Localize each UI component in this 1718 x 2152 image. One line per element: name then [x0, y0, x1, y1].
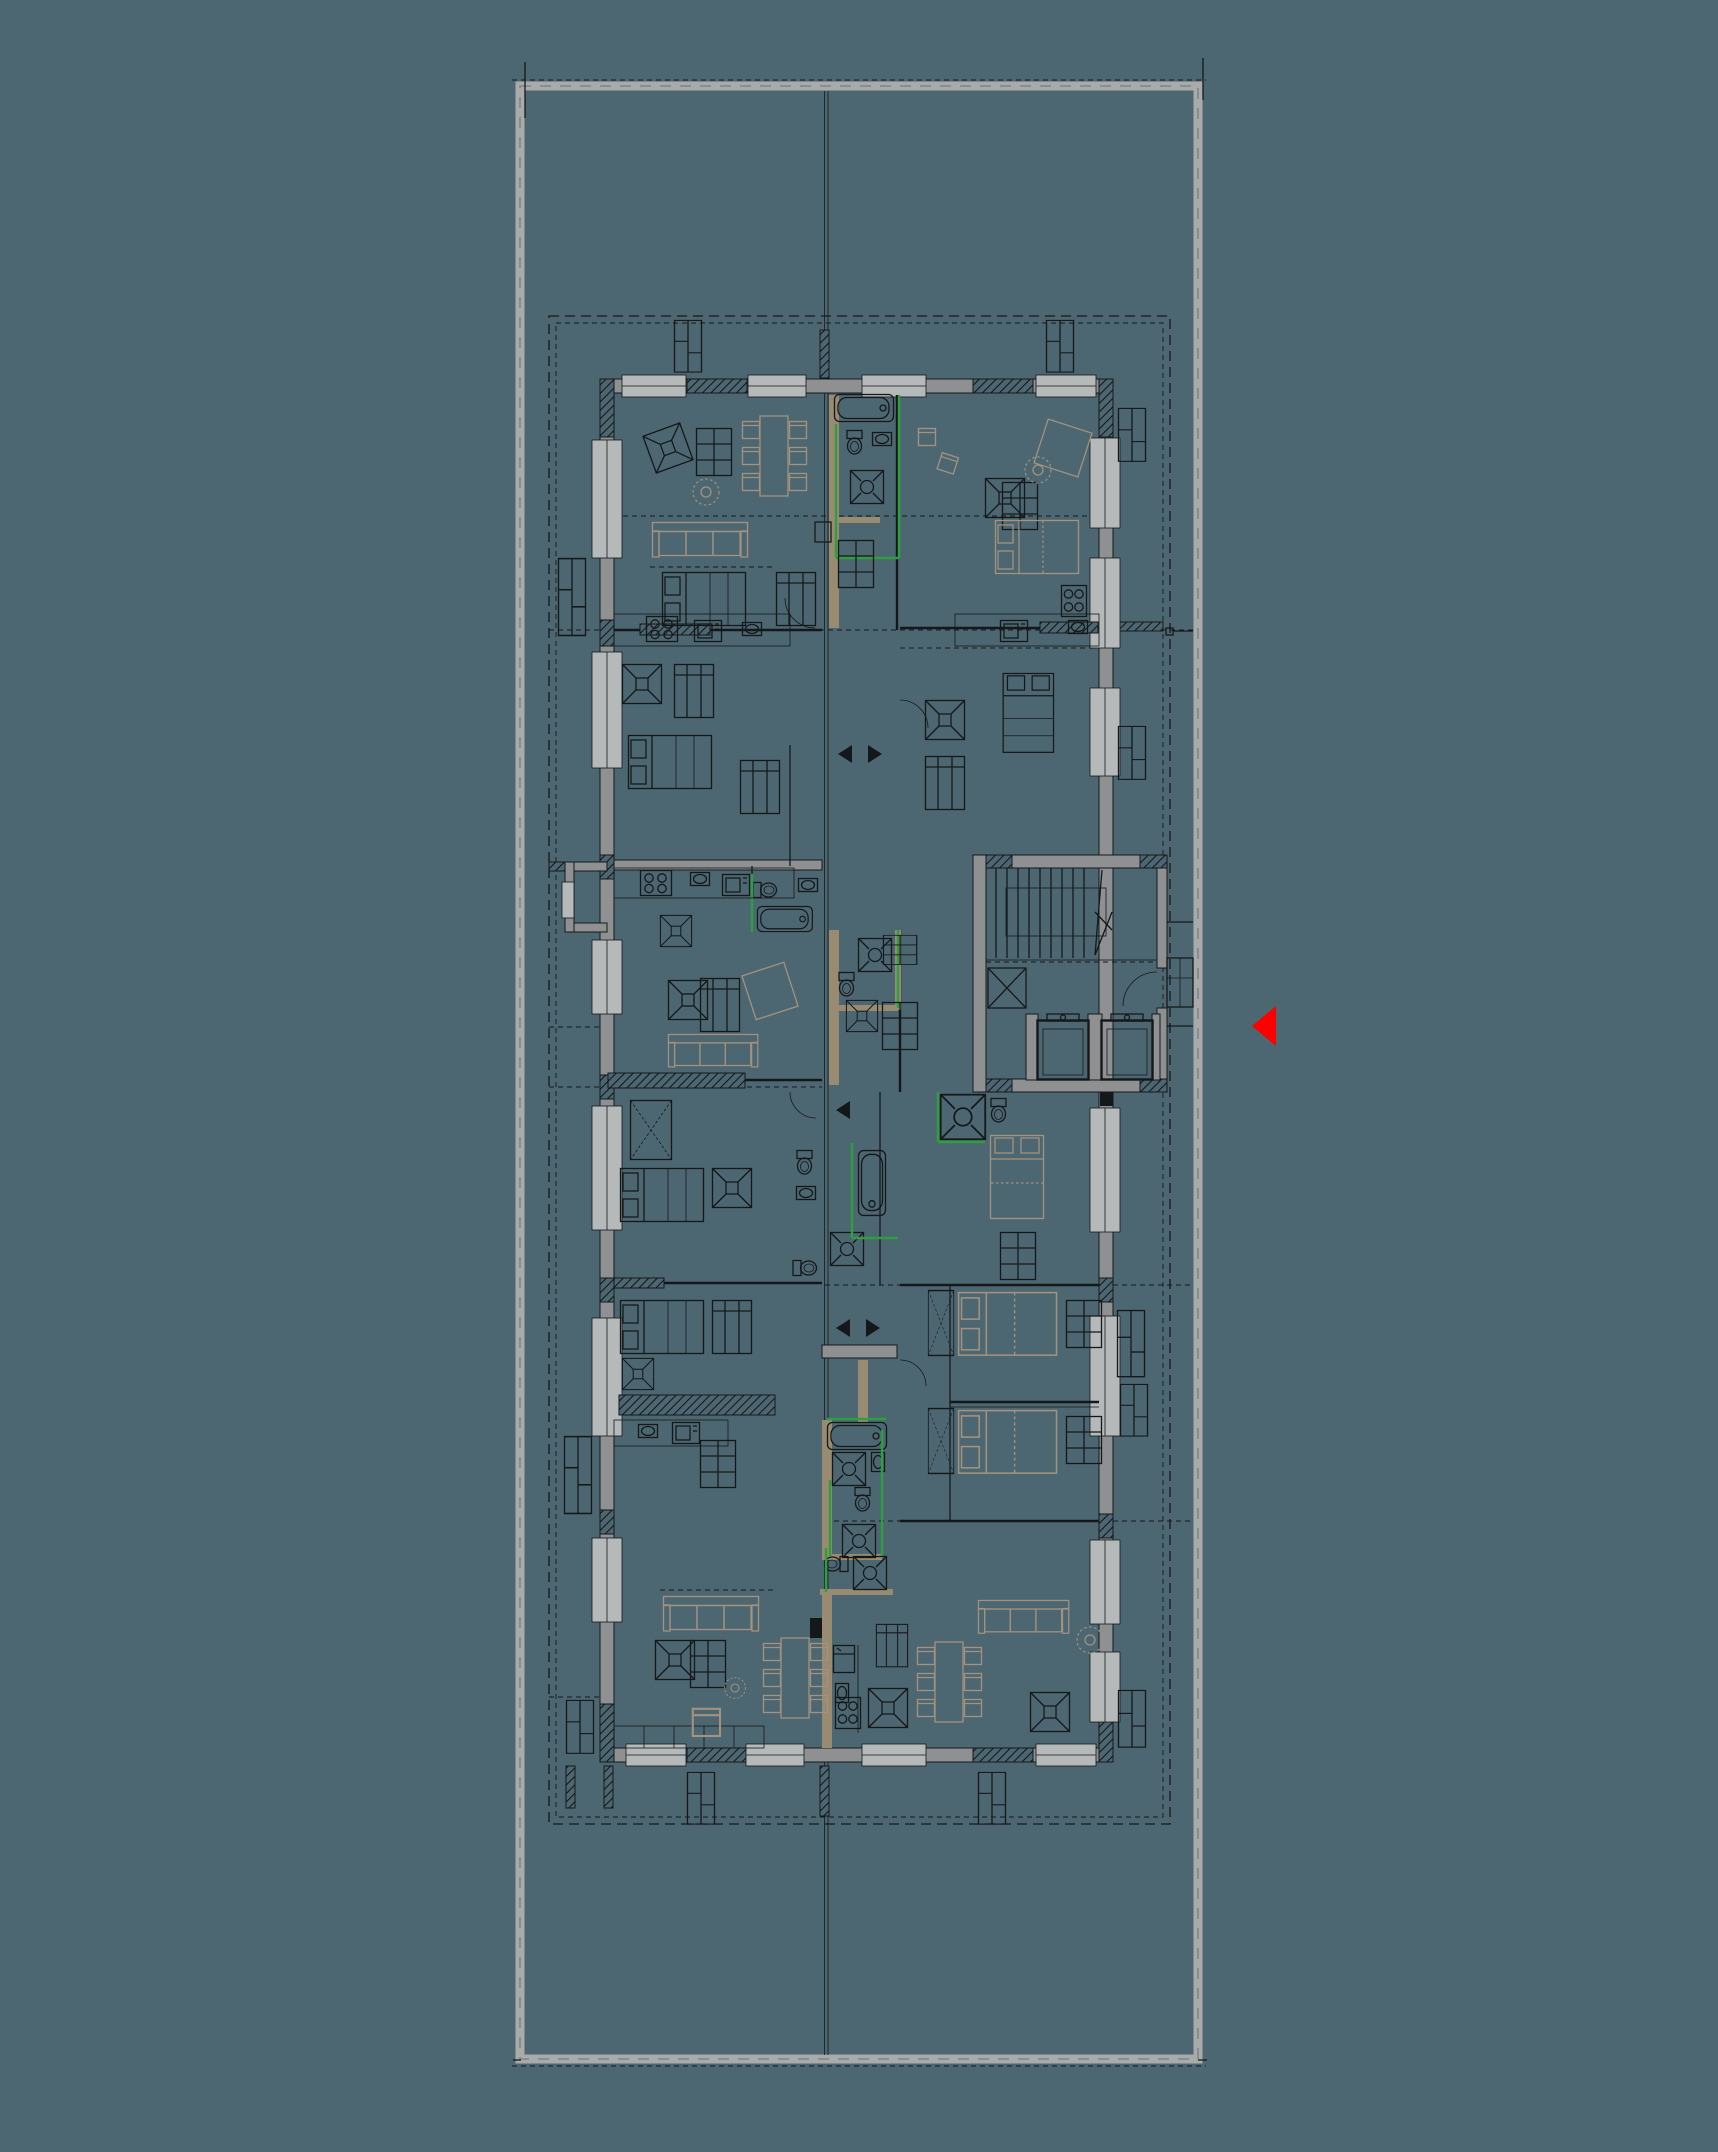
window-box-icon [1119, 1690, 1146, 1747]
sofa-icon [653, 523, 748, 558]
shoe-cabinet-icon [839, 541, 874, 588]
building [559, 320, 1194, 1824]
sofa-icon [664, 1597, 759, 1632]
window-box-icon [1119, 726, 1146, 779]
ceiling-light-icon [623, 665, 662, 704]
ceiling-light-icon [1031, 1693, 1070, 1732]
sink-icon [873, 433, 892, 446]
bed-icon [663, 573, 746, 626]
exterior-window-boxes [559, 320, 1148, 1824]
elevator-car [1038, 1014, 1089, 1080]
wardrobe-icon [675, 665, 714, 718]
wardrobe-icon [926, 757, 965, 810]
shower-icon [941, 1095, 986, 1140]
window-box-icon [688, 1772, 715, 1824]
toilet-icon [839, 973, 854, 997]
toilet-icon [797, 1151, 812, 1175]
wardrobe-icon [777, 573, 816, 626]
oven-icon [1001, 621, 1028, 642]
cabinet-icon [691, 1641, 726, 1688]
bathtub-icon [859, 1151, 886, 1216]
sofa-icon [978, 1600, 1068, 1633]
stair-flight [986, 868, 1157, 962]
ceiling-light-icon [656, 1641, 695, 1680]
stove-icon [641, 871, 672, 896]
armchair-icon [742, 962, 798, 1019]
window-box-icon [1118, 1311, 1145, 1377]
bathtub-icon [835, 395, 894, 422]
plant-icon [1025, 457, 1051, 483]
kitchens [614, 586, 1099, 1749]
bathtub-icon [828, 1423, 887, 1450]
armchair-icon [693, 1709, 720, 1736]
bed-icon [621, 1301, 704, 1354]
door-arrow-icon [868, 745, 882, 763]
shower-icon [843, 1525, 876, 1558]
survey-hatch [820, 330, 829, 378]
sink-icon [691, 873, 710, 886]
window-box-icon [567, 1700, 594, 1753]
survey-hatch [566, 1766, 575, 1808]
kitchen-top-right [955, 586, 1099, 647]
ceiling-light-icon [622, 1358, 653, 1389]
shower-icon [833, 1453, 866, 1486]
sink-icon [836, 1684, 849, 1703]
door-arrow-icon [836, 1319, 850, 1337]
plant-icon [693, 479, 719, 505]
toilet-icon [847, 431, 862, 455]
bathrooms [752, 395, 1006, 1593]
survey-hatch [1113, 622, 1163, 631]
sofa-icon [668, 1034, 757, 1066]
door-arrow-icon [836, 1101, 850, 1119]
bed-icon [621, 1169, 704, 1222]
window-box-icon [559, 559, 586, 636]
bathroom-below-core [938, 1092, 1006, 1142]
shower-icon [851, 471, 884, 504]
kitchen-bottom-right [834, 1645, 908, 1733]
bathroom-mid-left [752, 874, 818, 932]
oven-icon [673, 1423, 700, 1444]
toilet-icon [793, 1261, 817, 1276]
wardrobe-icon [741, 761, 780, 814]
window-box-icon [675, 320, 702, 372]
door-arrow-icon [866, 1319, 880, 1337]
window-box-icon [979, 1772, 1006, 1824]
dining-table-icon [743, 416, 807, 496]
bathroom-bottom-corridor [827, 1419, 887, 1558]
cabinet-icon [697, 429, 732, 476]
survey-hatch [604, 1766, 613, 1808]
hood-icon [869, 1689, 908, 1728]
toilet-icon [991, 1099, 1006, 1123]
corridor-walls [820, 395, 898, 1748]
floor-plan-drawing [0, 0, 1718, 2152]
window-box-icon [1121, 1384, 1148, 1436]
cabinet-icon [1003, 483, 1038, 530]
elevators [1026, 1014, 1160, 1080]
bed-icon [629, 736, 712, 789]
armchair-icon [937, 453, 958, 474]
dining-table-icon [764, 1638, 828, 1718]
toilet-icon [855, 1488, 870, 1512]
cabinet-icon [1001, 1233, 1036, 1280]
ceiling-light-icon [926, 701, 965, 740]
stove-icon [1062, 586, 1087, 617]
kitchen-lower-left [614, 1420, 728, 1446]
bed-icon [959, 1411, 1057, 1474]
parcel-boundary [549, 316, 1170, 1824]
entrance-marker [1252, 1006, 1276, 1046]
ceiling-light-icon [660, 915, 691, 946]
door-arrows [836, 745, 882, 1337]
bathroom-top-center [835, 395, 900, 559]
wardrobe-icon [701, 979, 740, 1032]
ceiling-light-icon [713, 1169, 752, 1208]
sink-icon [797, 1187, 816, 1200]
console-table [815, 522, 831, 542]
ceiling-light-icon [669, 981, 708, 1020]
dining-table-icon [918, 1642, 982, 1722]
bathroom-mid-center [839, 930, 898, 1008]
shaft [988, 968, 1026, 1008]
sink-icon [799, 879, 818, 892]
armchair-icon [919, 429, 936, 446]
toilet-icon [753, 883, 777, 898]
shower-icon [854, 1557, 887, 1590]
wardrobe-icon [876, 1624, 907, 1666]
door-arrow-icon [838, 745, 852, 763]
cabinet-icon [701, 1441, 736, 1488]
plant-icon [725, 1678, 746, 1699]
cabinet-icon [883, 935, 916, 964]
window-box-icon [1047, 320, 1074, 372]
entrance-porch [1167, 922, 1193, 1026]
closet-icon [631, 1101, 672, 1160]
wardrobe-icon [713, 1301, 752, 1354]
bed-icon [1003, 673, 1053, 752]
floor-plan-canvas [0, 0, 1718, 2152]
armchair-icon [643, 423, 693, 473]
fridge-icon [834, 1646, 855, 1673]
survey-hatch [820, 1766, 829, 1816]
oven-icon [723, 875, 750, 896]
stair-elevator-core [973, 855, 1193, 1092]
bed-icon [991, 1136, 1044, 1219]
bed-icon [959, 1293, 1057, 1356]
window-box-icon [1119, 408, 1146, 461]
sink-icon [639, 1425, 658, 1438]
bathroom-lower-center [793, 1143, 898, 1276]
window-box-icon [565, 1437, 592, 1514]
bathtub-icon [757, 906, 812, 931]
